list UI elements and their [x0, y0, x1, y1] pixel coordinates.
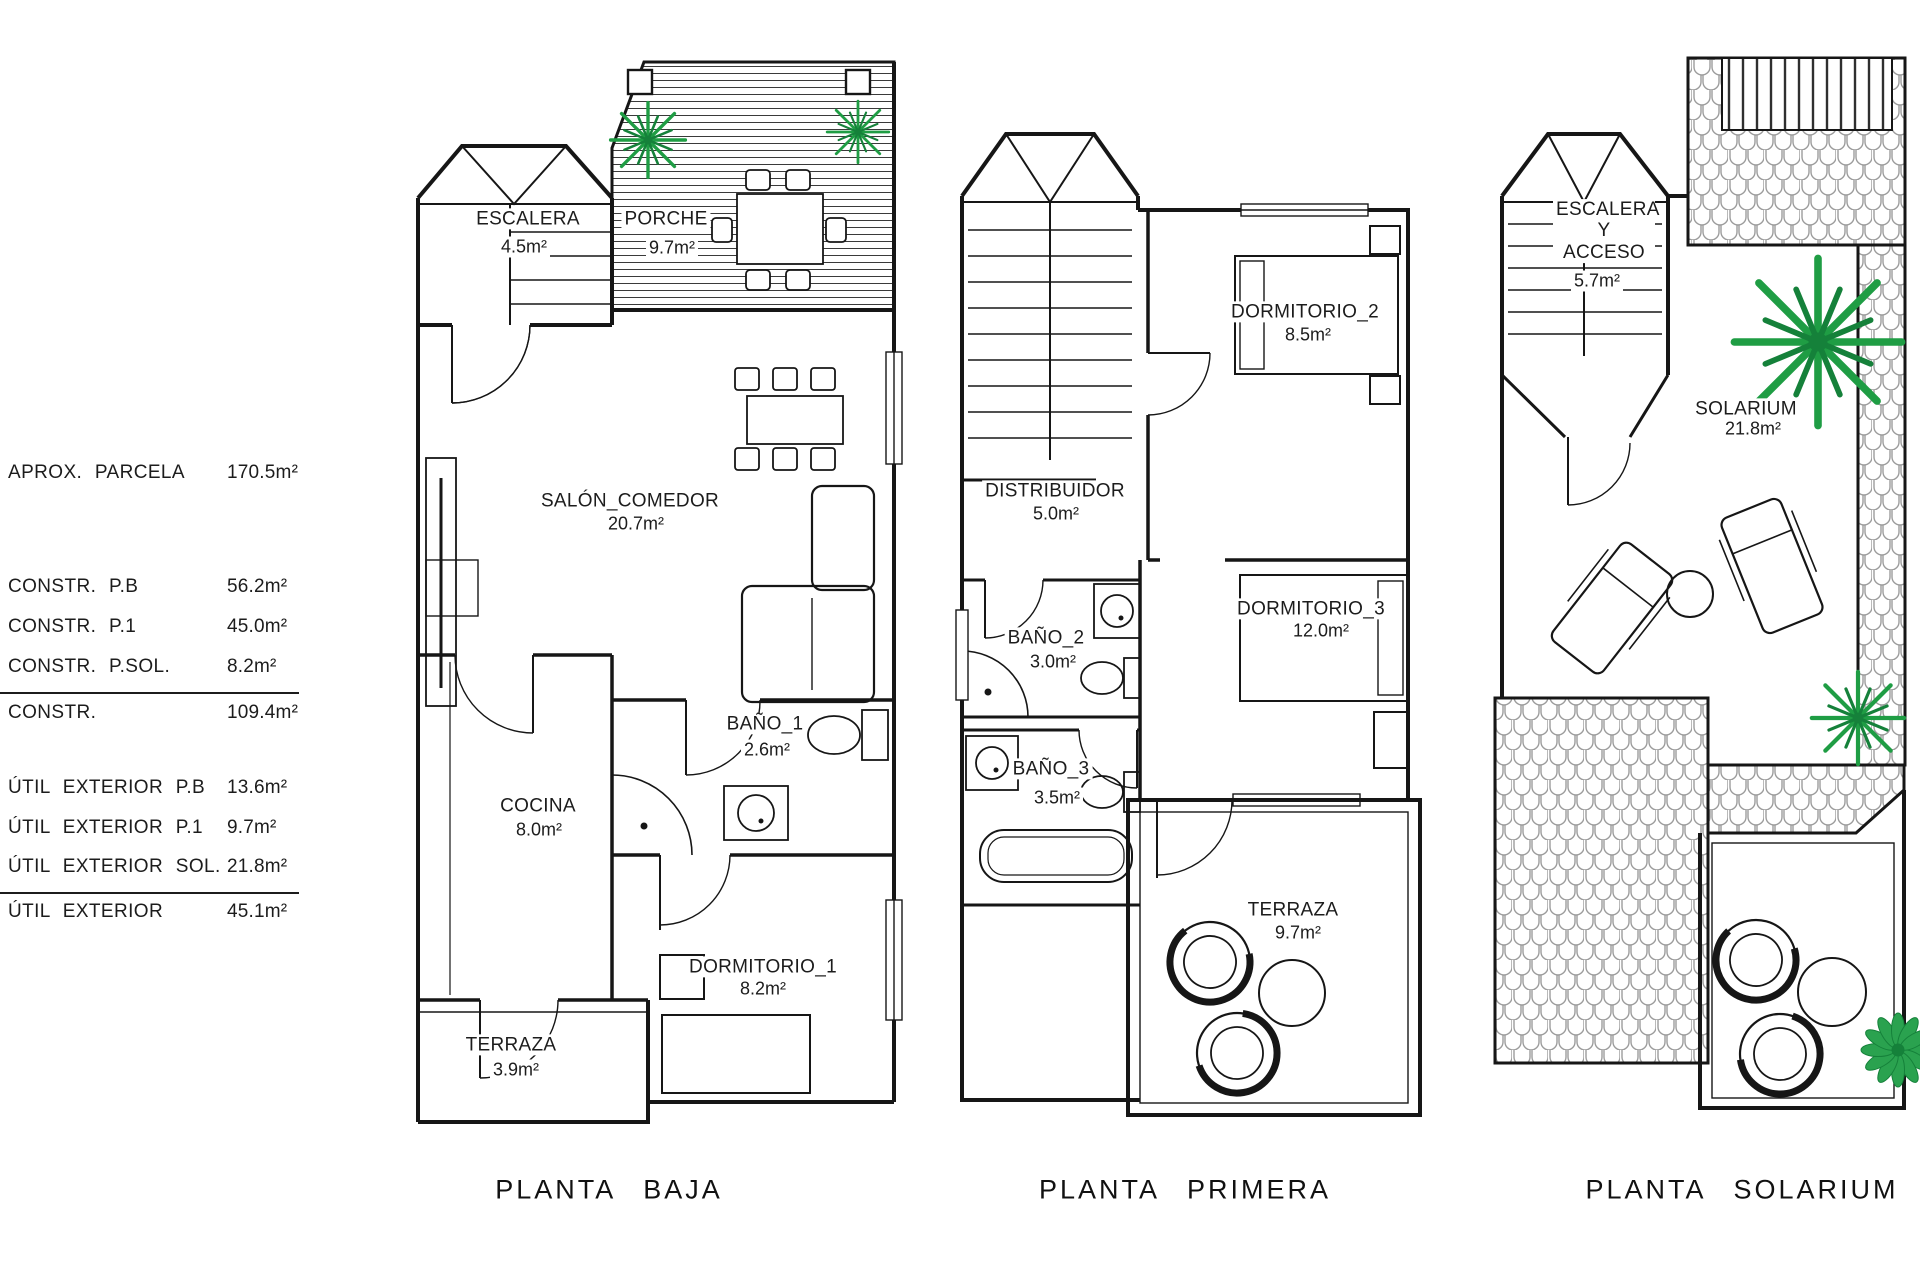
- legend-value: 8.2m²: [227, 656, 277, 678]
- legend-divider: [0, 692, 299, 694]
- legend-value: 56.2m²: [227, 576, 287, 598]
- legend-row: CONSTR. P.SOL. 8.2m²: [8, 656, 308, 678]
- legend-label: CONSTR. P.B: [8, 576, 138, 597]
- legend-value: 13.6m²: [227, 777, 287, 799]
- legend-value: 109.4m²: [227, 702, 298, 724]
- room-label-escalera: ESCALERA: [473, 208, 583, 229]
- legend-value: 21.8m²: [227, 856, 287, 878]
- legend-row: ÚTIL EXTERIOR P.B 13.6m²: [8, 777, 308, 799]
- room-area-solarium: 21.8m²: [1722, 419, 1784, 440]
- legend-value: 45.0m²: [227, 616, 287, 638]
- palm-icon: [611, 103, 686, 178]
- room-label-dormitorio-1: DORMITORIO_1: [686, 956, 840, 977]
- legend-row: ÚTIL EXTERIOR P.1 9.7m²: [8, 817, 308, 839]
- room-area-escalera: 4.5m²: [498, 237, 550, 258]
- legend-value: 170.5m²: [227, 462, 298, 484]
- legend-divider: [0, 892, 299, 894]
- room-label-bano-3: BAÑO_3: [1010, 758, 1093, 779]
- palm-icon: [1812, 672, 1904, 764]
- room-area-dormitorio-3: 12.0m²: [1290, 621, 1352, 642]
- legend-value: 45.1m²: [227, 901, 287, 923]
- room-label-distribuidor: DISTRIBUIDOR: [982, 480, 1128, 501]
- shrub-icon: [1861, 1013, 1920, 1087]
- room-label-salon-comedor: SALÓN_COMEDOR: [538, 490, 722, 511]
- legend-label: CONSTR. P.SOL.: [8, 656, 170, 677]
- room-area-porche: 9.7m²: [646, 238, 698, 259]
- palm-icon: [827, 101, 889, 163]
- room-area-distribuidor: 5.0m²: [1030, 504, 1082, 525]
- round-chair-icon: [1159, 911, 1262, 1014]
- room-area-dormitorio-2: 8.5m²: [1282, 325, 1334, 346]
- legend-row: CONSTR. 109.4m²: [8, 702, 308, 724]
- plan-title-primera: PLANTA PRIMERA: [1039, 1175, 1331, 1206]
- room-label-solarium: SOLARIUM: [1692, 398, 1800, 419]
- legend-row: ÚTIL EXTERIOR 45.1m²: [8, 901, 308, 923]
- room-label-bano-2: BAÑO_2: [1005, 627, 1088, 648]
- room-label-escalera-acceso: ESCALERA Y ACCESO: [1553, 199, 1655, 263]
- room-label-dormitorio-2: DORMITORIO_2: [1228, 301, 1382, 322]
- room-area-cocina: 8.0m²: [513, 820, 565, 841]
- floorplan-sheet: APROX. PARCELA 170.5m² CONSTR. P.B 56.2m…: [0, 0, 1920, 1280]
- legend-row: CONSTR. P.B 56.2m²: [8, 576, 308, 598]
- plan-title-solarium: PLANTA SOLARIUM: [1585, 1175, 1898, 1206]
- chaise-lounge-icon: [1713, 494, 1832, 638]
- round-chair-icon: [1707, 911, 1805, 1009]
- room-area-terraza-pb: 3.9m²: [490, 1060, 542, 1081]
- legend-row: ÚTIL EXTERIOR SOL. 21.8m²: [8, 856, 308, 878]
- room-area-bano-2: 3.0m²: [1027, 652, 1079, 673]
- legend-label: ÚTIL EXTERIOR SOL.: [8, 856, 221, 877]
- room-area-terraza-p1: 9.7m²: [1272, 923, 1324, 944]
- legend-label: CONSTR. P.1: [8, 616, 136, 637]
- room-area-escalera-acceso: 5.7m²: [1571, 271, 1623, 292]
- round-chair-icon: [1181, 997, 1294, 1110]
- legend-label: APROX. PARCELA: [8, 462, 185, 483]
- plan-title-baja: PLANTA BAJA: [495, 1175, 723, 1206]
- legend-label: ÚTIL EXTERIOR: [8, 901, 163, 922]
- room-label-cocina: COCINA: [497, 795, 579, 816]
- legend-row: CONSTR. P.1 45.0m²: [8, 616, 308, 638]
- room-area-salon-comedor: 20.7m²: [605, 514, 667, 535]
- chaise-lounge-icon: [1543, 535, 1681, 681]
- legend-label: ÚTIL EXTERIOR P.1: [8, 817, 203, 838]
- legend-label: ÚTIL EXTERIOR P.B: [8, 777, 205, 798]
- room-label-porche: PORCHE: [621, 208, 710, 229]
- room-label-terraza-p1: TERRAZA: [1245, 899, 1342, 920]
- floor-plan-drawing: [0, 0, 1920, 1280]
- room-label-terraza-pb: TERRAZA: [463, 1034, 560, 1055]
- room-label-bano-1: BAÑO_1: [724, 713, 807, 734]
- room-area-dormitorio-1: 8.2m²: [737, 979, 789, 1000]
- room-area-bano-3: 3.5m²: [1031, 788, 1083, 809]
- legend-label: CONSTR.: [8, 702, 96, 723]
- round-chair-icon: [1724, 998, 1837, 1111]
- legend-value: 9.7m²: [227, 817, 277, 839]
- legend-row: APROX. PARCELA 170.5m²: [8, 462, 308, 484]
- room-area-bano-1: 2.6m²: [741, 740, 793, 761]
- room-label-dormitorio-3: DORMITORIO_3: [1234, 598, 1388, 619]
